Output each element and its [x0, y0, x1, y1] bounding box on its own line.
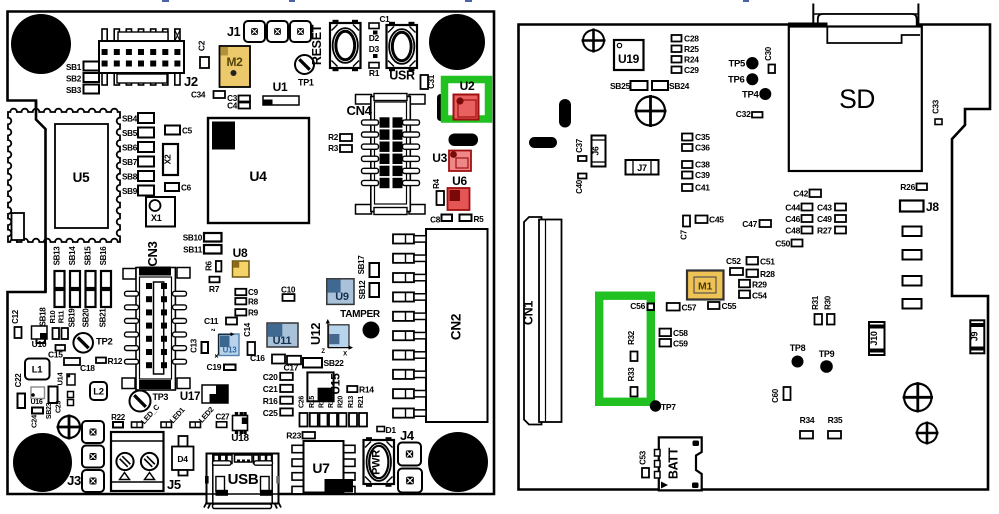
svg-text:C46: C46: [785, 214, 800, 224]
svg-text:C2: C2: [197, 40, 207, 51]
svg-text:C34: C34: [191, 91, 206, 100]
svg-text:C6: C6: [181, 184, 192, 193]
svg-text:C32: C32: [736, 109, 751, 119]
svg-text:SB19: SB19: [68, 308, 77, 328]
svg-text:J6: J6: [591, 146, 601, 155]
svg-text:C51: C51: [760, 257, 775, 267]
svg-text:R13: R13: [348, 396, 355, 408]
svg-text:SB1: SB1: [66, 63, 82, 72]
svg-text:C29: C29: [684, 65, 699, 75]
svg-text:C14: C14: [243, 322, 252, 337]
svg-text:C4: C4: [227, 102, 238, 111]
svg-text:L1: L1: [32, 365, 44, 376]
svg-text:J1: J1: [227, 25, 241, 39]
svg-text:SB7: SB7: [122, 158, 138, 167]
svg-text:U19: U19: [618, 52, 640, 66]
svg-text:J2: J2: [184, 74, 198, 89]
svg-text:U9: U9: [335, 291, 349, 303]
svg-text:TP5: TP5: [728, 59, 746, 70]
svg-text:R27: R27: [817, 226, 832, 236]
svg-text:D2: D2: [369, 33, 380, 43]
svg-text:SB5: SB5: [122, 129, 138, 138]
svg-text:C20: C20: [263, 372, 278, 382]
svg-text:C42: C42: [793, 189, 808, 199]
svg-text:CN1: CN1: [522, 301, 536, 325]
svg-text:R23: R23: [286, 431, 301, 441]
svg-text:SB17: SB17: [357, 255, 366, 275]
svg-text:U13: U13: [223, 346, 238, 355]
svg-text:SB13: SB13: [53, 246, 62, 266]
svg-text:C22: C22: [14, 373, 23, 388]
svg-text:R14: R14: [359, 385, 374, 395]
svg-text:C17: C17: [284, 363, 299, 373]
svg-text:C49: C49: [817, 214, 832, 224]
svg-text:PWR: PWR: [370, 450, 382, 475]
svg-text:C12: C12: [11, 309, 20, 324]
svg-text:SB4: SB4: [122, 115, 138, 124]
svg-text:SB22: SB22: [324, 358, 345, 368]
svg-text:C53: C53: [639, 450, 648, 465]
svg-text:R16: R16: [263, 396, 278, 406]
svg-text:C41: C41: [695, 183, 710, 193]
svg-text:R8: R8: [248, 298, 259, 307]
svg-text:SB25: SB25: [610, 81, 631, 91]
svg-text:R5: R5: [474, 215, 485, 224]
svg-text:C13: C13: [190, 338, 199, 353]
svg-text:C55: C55: [722, 301, 737, 311]
svg-text:SB23: SB23: [46, 402, 53, 419]
svg-text:CN4: CN4: [347, 103, 373, 118]
svg-text:C10: C10: [281, 286, 296, 295]
svg-text:R28: R28: [760, 269, 775, 279]
svg-text:C36: C36: [695, 143, 710, 153]
svg-text:TP6: TP6: [728, 75, 745, 86]
svg-text:C48: C48: [785, 226, 800, 236]
svg-text:R19: R19: [328, 396, 335, 408]
svg-text:U10: U10: [32, 339, 47, 349]
svg-text:U6: U6: [452, 174, 467, 188]
svg-text:RESET: RESET: [310, 24, 324, 65]
svg-text:C18: C18: [80, 363, 95, 373]
svg-text:USB: USB: [228, 471, 259, 488]
svg-text:TP4: TP4: [742, 90, 760, 101]
svg-text:R2: R2: [328, 133, 339, 142]
svg-text:C37: C37: [575, 138, 584, 153]
svg-text:C26: C26: [299, 396, 306, 408]
svg-text:TP8: TP8: [790, 343, 806, 353]
svg-text:C23: C23: [56, 401, 63, 413]
svg-text:U18: U18: [231, 433, 249, 444]
svg-text:SB3: SB3: [66, 86, 82, 95]
svg-text:U3: U3: [432, 151, 447, 165]
svg-text:R21: R21: [358, 396, 365, 408]
svg-text:C24: C24: [30, 414, 39, 428]
svg-text:C54: C54: [752, 291, 767, 301]
svg-text:R11: R11: [57, 311, 66, 324]
svg-text:TP7: TP7: [661, 402, 676, 412]
svg-text:R20: R20: [338, 396, 345, 408]
svg-text:C33: C33: [932, 99, 941, 114]
svg-text:D3: D3: [369, 44, 380, 54]
svg-text:R34: R34: [800, 415, 815, 425]
svg-text:U2: U2: [460, 79, 475, 93]
svg-text:J5: J5: [167, 477, 181, 492]
svg-text:X1: X1: [151, 213, 162, 223]
svg-text:C16: C16: [250, 353, 265, 363]
svg-text:SB11: SB11: [183, 246, 203, 255]
svg-text:SB10: SB10: [183, 234, 203, 243]
svg-text:C5: C5: [182, 127, 193, 136]
svg-text:U8: U8: [233, 246, 248, 260]
svg-text:C39: C39: [695, 170, 710, 180]
svg-text:R18: R18: [319, 396, 326, 408]
svg-text:SD: SD: [839, 84, 875, 114]
svg-text:C8: C8: [430, 216, 441, 225]
svg-text:M2: M2: [226, 55, 243, 69]
svg-text:C60: C60: [771, 388, 780, 403]
svg-text:R29: R29: [752, 280, 767, 290]
svg-text:J10: J10: [869, 331, 879, 345]
svg-text:USR: USR: [389, 69, 415, 83]
svg-text:SB18: SB18: [39, 307, 48, 327]
svg-text:R3: R3: [328, 144, 339, 153]
svg-text:R32: R32: [627, 330, 636, 345]
svg-text:U14: U14: [56, 371, 65, 385]
svg-text:J4: J4: [400, 428, 415, 443]
svg-text:C58: C58: [673, 328, 688, 338]
svg-text:C19: C19: [207, 362, 222, 372]
svg-text:X2: X2: [163, 154, 173, 164]
svg-text:C47: C47: [742, 219, 757, 229]
svg-text:TP9: TP9: [819, 349, 835, 359]
svg-text:R26: R26: [900, 182, 915, 192]
svg-text:R6: R6: [205, 260, 214, 270]
svg-text:BATT: BATT: [667, 447, 681, 479]
svg-text:z: z: [211, 328, 217, 331]
svg-text:SB15: SB15: [84, 246, 93, 266]
svg-text:M1: M1: [698, 281, 712, 293]
svg-text:C44: C44: [785, 203, 800, 213]
svg-text:U17: U17: [180, 391, 200, 403]
svg-text:C7: C7: [680, 229, 689, 239]
svg-text:C50: C50: [775, 239, 790, 249]
svg-text:SB12: SB12: [358, 280, 367, 300]
svg-text:C1: C1: [380, 15, 391, 24]
svg-text:TP1: TP1: [298, 78, 314, 88]
svg-text:J8: J8: [926, 200, 939, 214]
svg-text:SB21: SB21: [99, 308, 108, 328]
svg-text:CN3: CN3: [145, 241, 160, 266]
svg-text:R25: R25: [684, 44, 699, 54]
svg-text:J3: J3: [67, 473, 81, 488]
svg-text:R33: R33: [627, 367, 636, 382]
svg-text:R15: R15: [309, 396, 316, 408]
svg-text:D4: D4: [177, 454, 188, 464]
svg-text:R35: R35: [828, 415, 843, 425]
svg-text:U1: U1: [273, 80, 288, 94]
svg-text:SB14: SB14: [68, 246, 77, 266]
svg-text:R31: R31: [811, 295, 820, 310]
svg-text:C30: C30: [764, 46, 773, 61]
svg-text:J9: J9: [969, 332, 979, 342]
svg-text:C45: C45: [709, 215, 724, 225]
svg-text:C27: C27: [216, 413, 231, 422]
svg-text:CN2: CN2: [449, 314, 464, 340]
svg-text:TP3: TP3: [153, 392, 169, 402]
svg-text:C57: C57: [682, 303, 697, 313]
svg-text:SB24: SB24: [669, 81, 690, 91]
svg-text:L2: L2: [93, 387, 104, 398]
svg-text:TAMPER: TAMPER: [340, 309, 381, 320]
svg-text:C28: C28: [684, 34, 699, 44]
svg-text:U15: U15: [329, 373, 343, 395]
svg-text:U5: U5: [73, 170, 90, 185]
svg-text:C59: C59: [673, 339, 688, 349]
svg-text:SB6: SB6: [122, 144, 138, 153]
svg-text:C11: C11: [204, 316, 219, 326]
svg-text:C56: C56: [630, 301, 645, 311]
svg-text:U7: U7: [312, 460, 330, 476]
svg-text:U16: U16: [31, 399, 43, 406]
svg-text:X: X: [343, 352, 347, 358]
svg-text:SB8: SB8: [122, 173, 138, 182]
svg-text:C15: C15: [48, 350, 63, 360]
svg-text:C25: C25: [263, 408, 278, 418]
svg-text:R22: R22: [111, 413, 126, 422]
svg-text:U12: U12: [309, 323, 323, 345]
svg-text:R9: R9: [248, 309, 259, 318]
svg-text:R1: R1: [369, 68, 380, 78]
svg-text:D1: D1: [386, 425, 397, 435]
svg-text:SB9: SB9: [122, 187, 138, 196]
svg-text:C52: C52: [726, 256, 741, 266]
svg-text:R7: R7: [209, 284, 220, 294]
svg-text:J7: J7: [637, 163, 647, 173]
svg-text:SB20: SB20: [82, 308, 91, 328]
svg-text:C31: C31: [427, 74, 436, 89]
svg-text:C9: C9: [248, 288, 259, 297]
svg-text:C40: C40: [575, 179, 584, 194]
svg-text:R30: R30: [824, 295, 833, 310]
svg-text:SB16: SB16: [99, 246, 108, 266]
svg-text:C43: C43: [817, 203, 832, 213]
svg-text:R12: R12: [108, 356, 123, 366]
svg-text:C38: C38: [695, 160, 710, 170]
svg-text:C35: C35: [695, 132, 710, 142]
svg-text:U11: U11: [273, 335, 292, 347]
svg-text:R24: R24: [684, 55, 699, 65]
svg-text:C21: C21: [263, 384, 278, 394]
svg-text:U4: U4: [249, 168, 267, 184]
svg-text:TP2: TP2: [96, 337, 113, 348]
svg-text:SB2: SB2: [66, 75, 82, 84]
svg-text:R4: R4: [432, 178, 441, 188]
